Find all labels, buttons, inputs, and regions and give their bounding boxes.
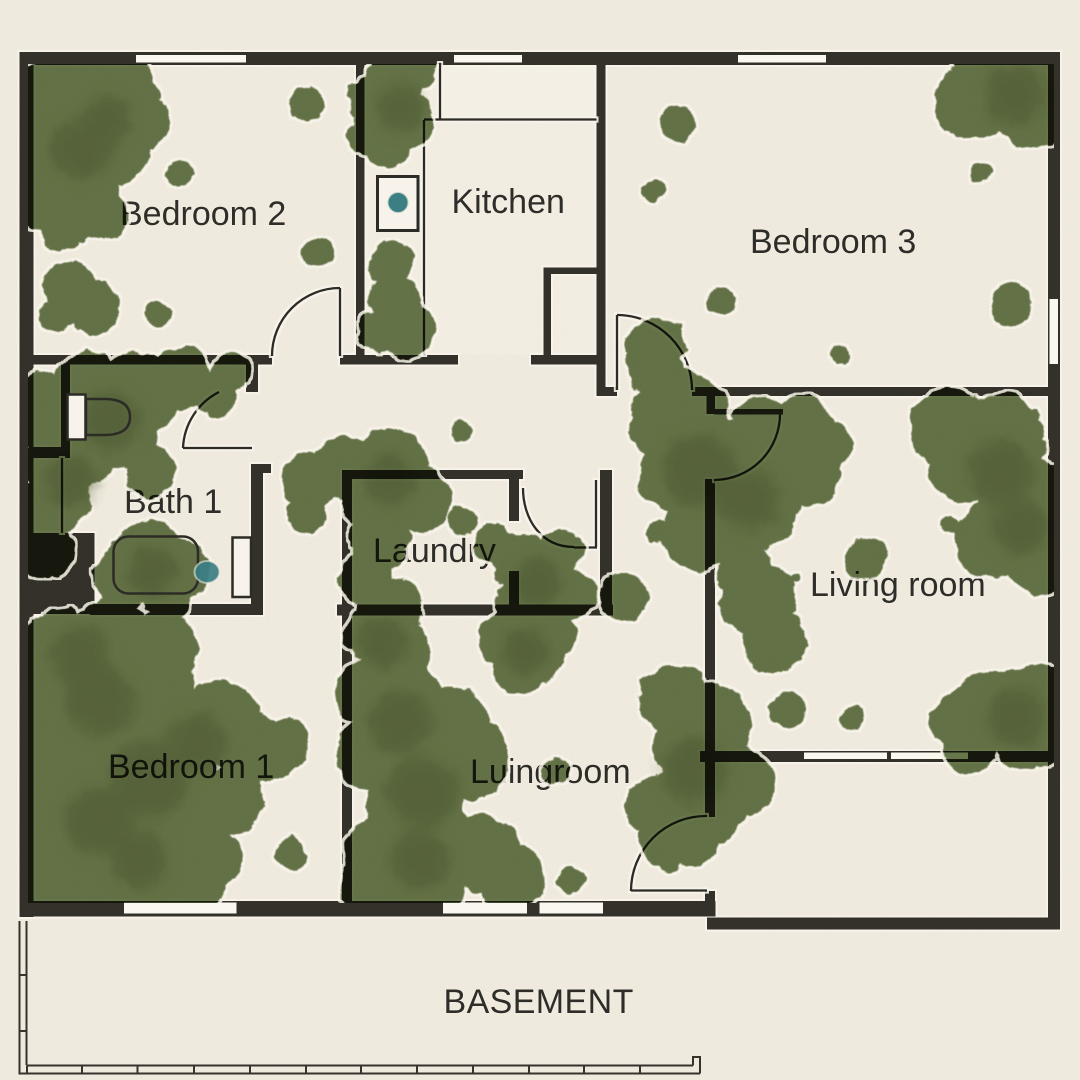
svg-text:Kitchen: Kitchen	[452, 183, 565, 221]
svg-text:Bedroom 2: Bedroom 2	[120, 195, 286, 233]
svg-text:Living room: Living room	[810, 566, 986, 604]
svg-text:Bedroom 3: Bedroom 3	[750, 223, 916, 261]
svg-text:BASEMENT: BASEMENT	[444, 983, 634, 1021]
